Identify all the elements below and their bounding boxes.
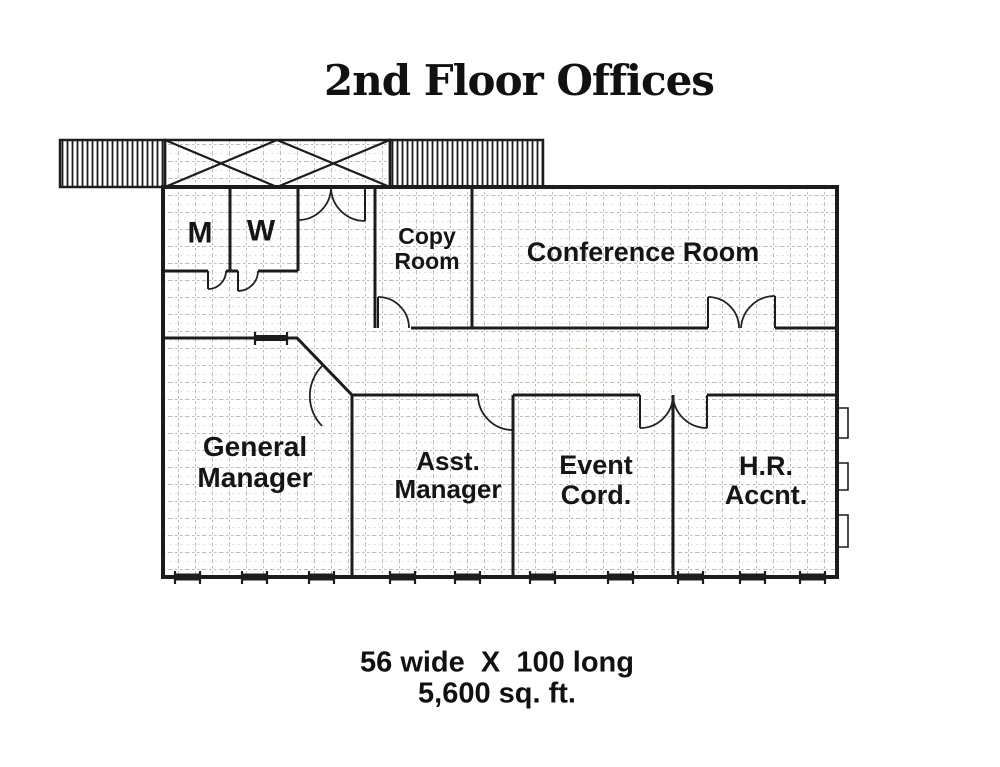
room-label-conference-room: Conference Room <box>527 238 760 268</box>
event-coordinator-line2: Cord. <box>559 480 633 510</box>
room-label-copy-room: Copy Room <box>394 224 459 274</box>
page-title: 2nd Floor Offices <box>324 56 714 105</box>
general-manager-line2: Manager <box>197 462 312 493</box>
copy-room-line1: Copy <box>394 224 459 249</box>
room-label-event-coordinator: Event Cord. <box>559 450 633 510</box>
footer-dimensions: 56 wide X 100 long <box>360 647 634 680</box>
asst-manager-line2: Manager <box>395 475 502 503</box>
asst-manager-line1: Asst. <box>395 447 502 475</box>
room-label-mens-restroom: M <box>188 217 213 250</box>
room-label-asst-manager: Asst. Manager <box>395 447 502 503</box>
stairs-left-hatch <box>60 140 165 187</box>
room-label-womens-restroom: W <box>247 215 275 248</box>
hr-accountant-line2: Accnt. <box>725 481 808 510</box>
hr-accountant-line1: H.R. <box>725 452 808 481</box>
room-label-general-manager: General Manager <box>197 431 312 493</box>
stairs-right-hatch <box>390 140 543 187</box>
event-coordinator-line1: Event <box>559 450 633 480</box>
copy-room-line2: Room <box>394 249 459 274</box>
floor-plan-page: 2nd Floor Offices M W Copy Room Conferen… <box>0 0 1000 767</box>
elevator-shaft-box <box>165 140 390 187</box>
footer-area: 5,600 sq. ft. <box>418 678 576 711</box>
room-label-hr-accountant: H.R. Accnt. <box>725 452 808 510</box>
general-manager-line1: General <box>197 431 312 462</box>
